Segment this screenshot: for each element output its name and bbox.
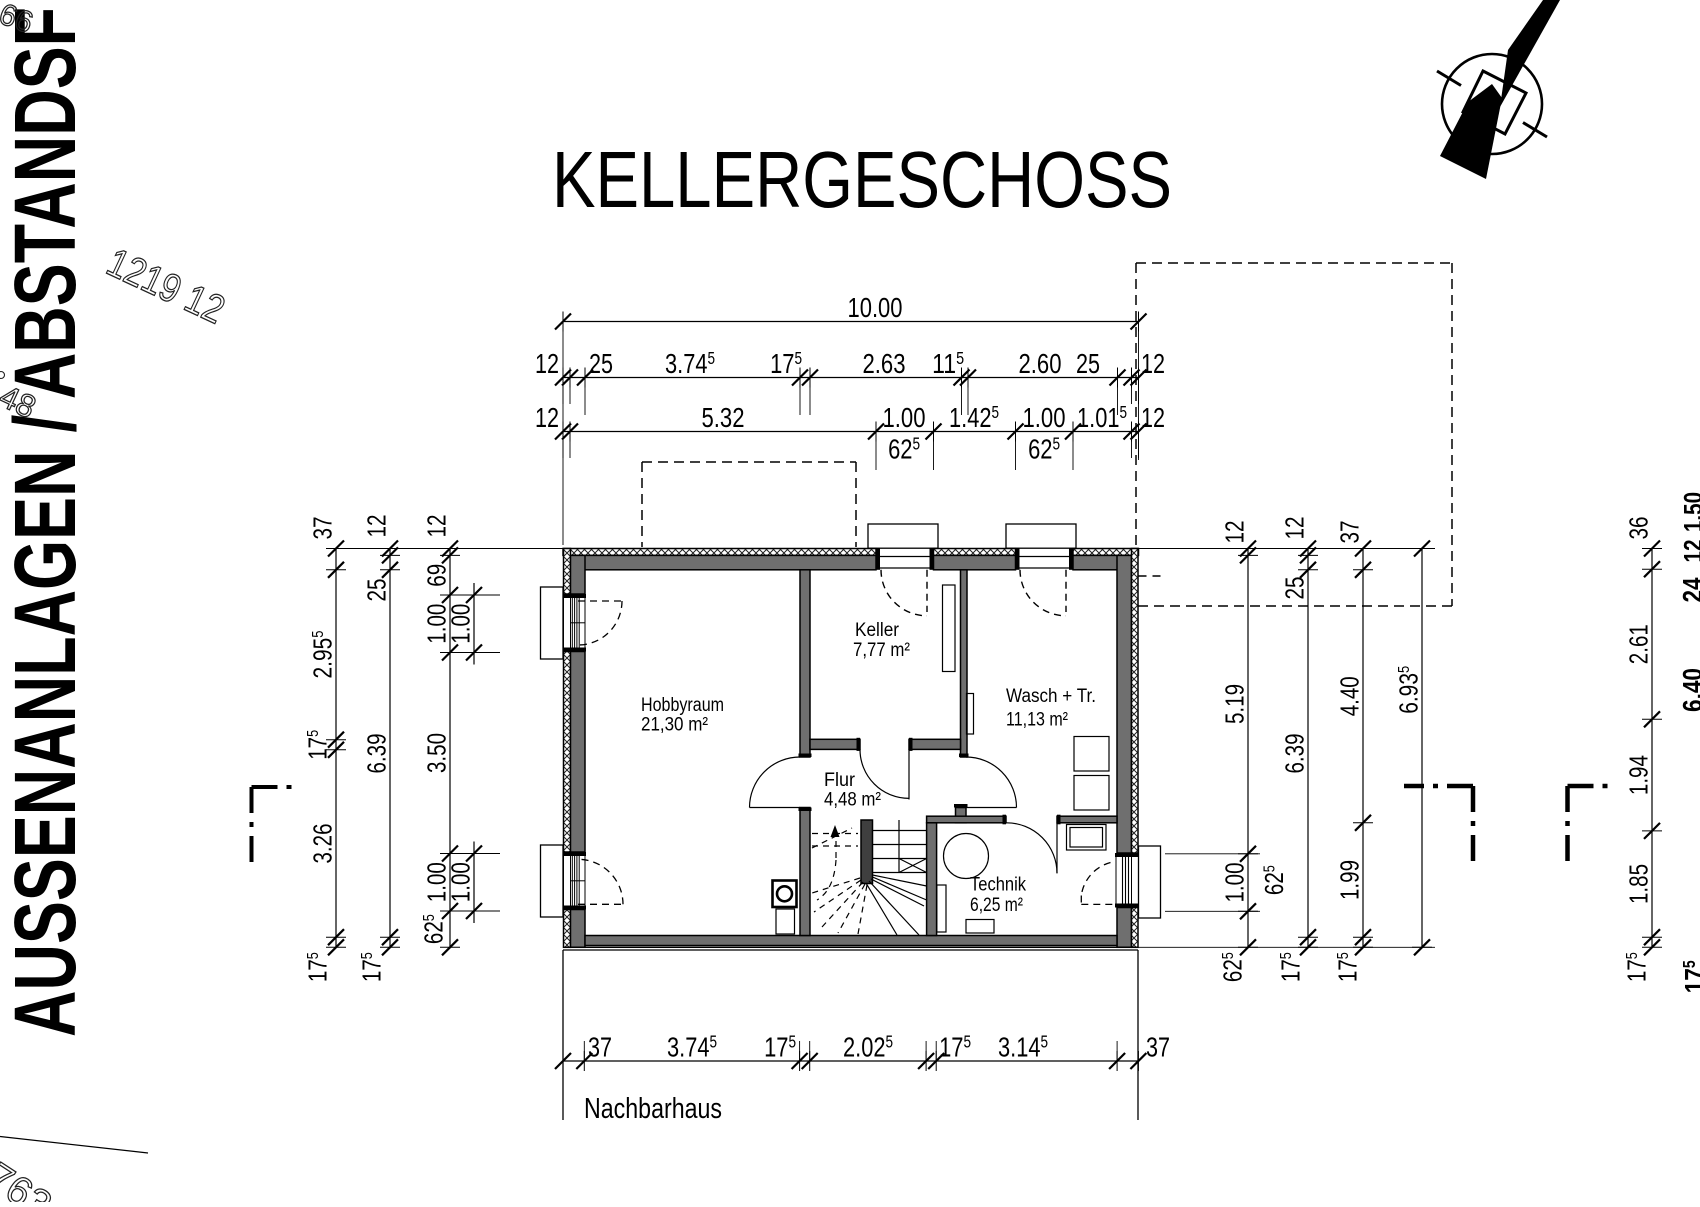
svg-text:1.00: 1.00 (883, 402, 926, 433)
svg-text:6,25 m²: 6,25 m² (970, 895, 1023, 916)
svg-text:37: 37 (588, 1032, 612, 1063)
svg-text:12: 12 (362, 515, 392, 538)
svg-text:Flur: Flur (824, 770, 856, 791)
svg-text:12: 12 (1678, 540, 1700, 563)
svg-text:1.00: 1.00 (1220, 863, 1250, 903)
svg-text:1.94: 1.94 (1624, 755, 1654, 795)
svg-text:37: 37 (1146, 1032, 1170, 1063)
svg-text:10.00: 10.00 (848, 292, 903, 323)
svg-text:2.61: 2.61 (1624, 624, 1654, 664)
svg-text:21,30 m²: 21,30 m² (641, 715, 708, 736)
svg-text:12: 12 (1280, 517, 1310, 540)
svg-text:7,77 m²: 7,77 m² (853, 640, 910, 661)
svg-text:1.99: 1.99 (1335, 860, 1365, 900)
svg-text:12: 12 (1141, 402, 1165, 433)
svg-text:37: 37 (1335, 521, 1365, 544)
svg-text:KELLERGESCHOSS: KELLERGESCHOSS (552, 135, 1172, 224)
svg-text:1.00: 1.00 (1023, 402, 1066, 433)
svg-text:6.39: 6.39 (362, 734, 392, 774)
svg-text:Keller: Keller (855, 620, 900, 641)
svg-text:25: 25 (1076, 348, 1100, 379)
svg-text:25: 25 (362, 579, 392, 602)
svg-text:12: 12 (535, 348, 559, 379)
svg-text:6.39: 6.39 (1280, 734, 1310, 774)
svg-text:12: 12 (535, 402, 559, 433)
svg-text:AUSSENANLAGEN / ABSTANDSF: AUSSENANLAGEN / ABSTANDSF (0, 7, 94, 1037)
svg-text:5.19: 5.19 (1220, 684, 1250, 724)
svg-text:175: 175 (1679, 960, 1700, 993)
svg-text:12: 12 (422, 515, 452, 538)
svg-text:Technik: Technik (970, 875, 1026, 896)
svg-text:Wasch + Tr.: Wasch + Tr. (1006, 686, 1096, 707)
svg-text:11,13 m²: 11,13 m² (1006, 710, 1068, 731)
svg-text:Hobbyraum: Hobbyraum (641, 695, 724, 716)
svg-text:Nachbarhaus: Nachbarhaus (584, 1093, 722, 1125)
svg-text:2.63: 2.63 (863, 348, 906, 379)
svg-text:37: 37 (308, 517, 338, 540)
svg-text:12: 12 (1141, 348, 1165, 379)
svg-text:24: 24 (1677, 577, 1700, 602)
svg-text:1.00: 1.00 (446, 862, 476, 902)
svg-text:12: 12 (1220, 521, 1250, 544)
svg-text:1.00: 1.00 (446, 604, 476, 644)
svg-text:1.50: 1.50 (1678, 492, 1700, 532)
svg-text:69: 69 (422, 564, 452, 587)
svg-text:25: 25 (589, 348, 613, 379)
svg-text:25: 25 (1280, 577, 1310, 600)
svg-text:6.40: 6.40 (1677, 668, 1700, 712)
svg-text:5.32: 5.32 (702, 402, 745, 433)
svg-text:3.26: 3.26 (308, 824, 338, 864)
svg-text:3.50: 3.50 (422, 733, 452, 773)
svg-text:4,48 m²: 4,48 m² (824, 790, 881, 811)
svg-text:1.85: 1.85 (1624, 864, 1654, 904)
svg-text:4.40: 4.40 (1335, 676, 1365, 716)
svg-text:2.60: 2.60 (1019, 348, 1062, 379)
svg-text:36: 36 (1624, 517, 1654, 540)
